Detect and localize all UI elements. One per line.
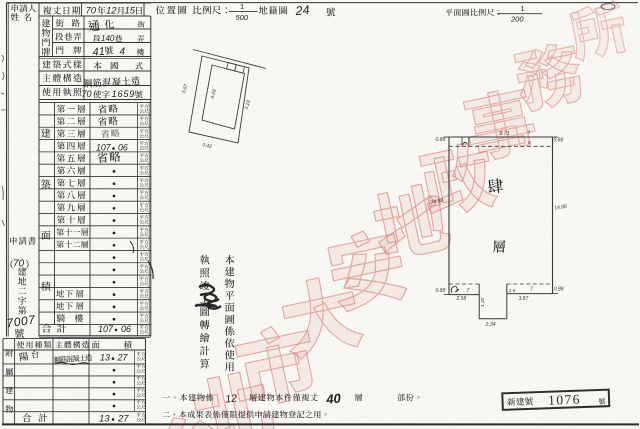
svg-text:06: 06 <box>118 143 128 153</box>
svg-text:13: 13 <box>100 353 110 363</box>
svg-text:140: 140 <box>101 34 115 43</box>
svg-text:12: 12 <box>106 6 117 17</box>
svg-text:7: 7 <box>467 288 470 294</box>
svg-text:27: 27 <box>117 353 129 363</box>
svg-text:2.58: 2.58 <box>456 296 467 302</box>
svg-text:7: 7 <box>530 287 533 293</box>
svg-text:40: 40 <box>325 390 342 406</box>
svg-text:13: 13 <box>99 414 110 425</box>
svg-text:1659: 1659 <box>112 89 136 100</box>
svg-text:1: 1 <box>240 2 244 11</box>
svg-text:2.34: 2.34 <box>485 322 496 328</box>
svg-text:06: 06 <box>121 324 131 334</box>
svg-text:12: 12 <box>225 392 238 405</box>
svg-text:70: 70 <box>86 6 97 17</box>
svg-text:3.87: 3.87 <box>519 296 529 302</box>
svg-text:107: 107 <box>96 143 112 153</box>
svg-text:1.5: 1.5 <box>509 288 516 294</box>
svg-text:0.88: 0.88 <box>436 288 446 294</box>
svg-text:200: 200 <box>510 14 524 23</box>
svg-text:8.71: 8.71 <box>500 131 510 137</box>
svg-text:0.88: 0.88 <box>554 286 564 292</box>
svg-text:0.88: 0.88 <box>436 137 446 143</box>
svg-text:15: 15 <box>125 6 136 17</box>
svg-text:4: 4 <box>120 47 126 58</box>
svg-text:500: 500 <box>236 13 249 22</box>
svg-text:107: 107 <box>98 324 114 334</box>
svg-text:27: 27 <box>117 414 129 425</box>
svg-text:41: 41 <box>92 46 105 59</box>
svg-text:24: 24 <box>294 3 310 18</box>
svg-text:1.40: 1.40 <box>480 297 486 307</box>
svg-text:1: 1 <box>521 4 525 13</box>
svg-text:70: 70 <box>82 89 92 99</box>
svg-text:6: 6 <box>528 140 531 146</box>
svg-text:0.88: 0.88 <box>554 137 564 143</box>
svg-text:1076: 1076 <box>548 392 582 408</box>
